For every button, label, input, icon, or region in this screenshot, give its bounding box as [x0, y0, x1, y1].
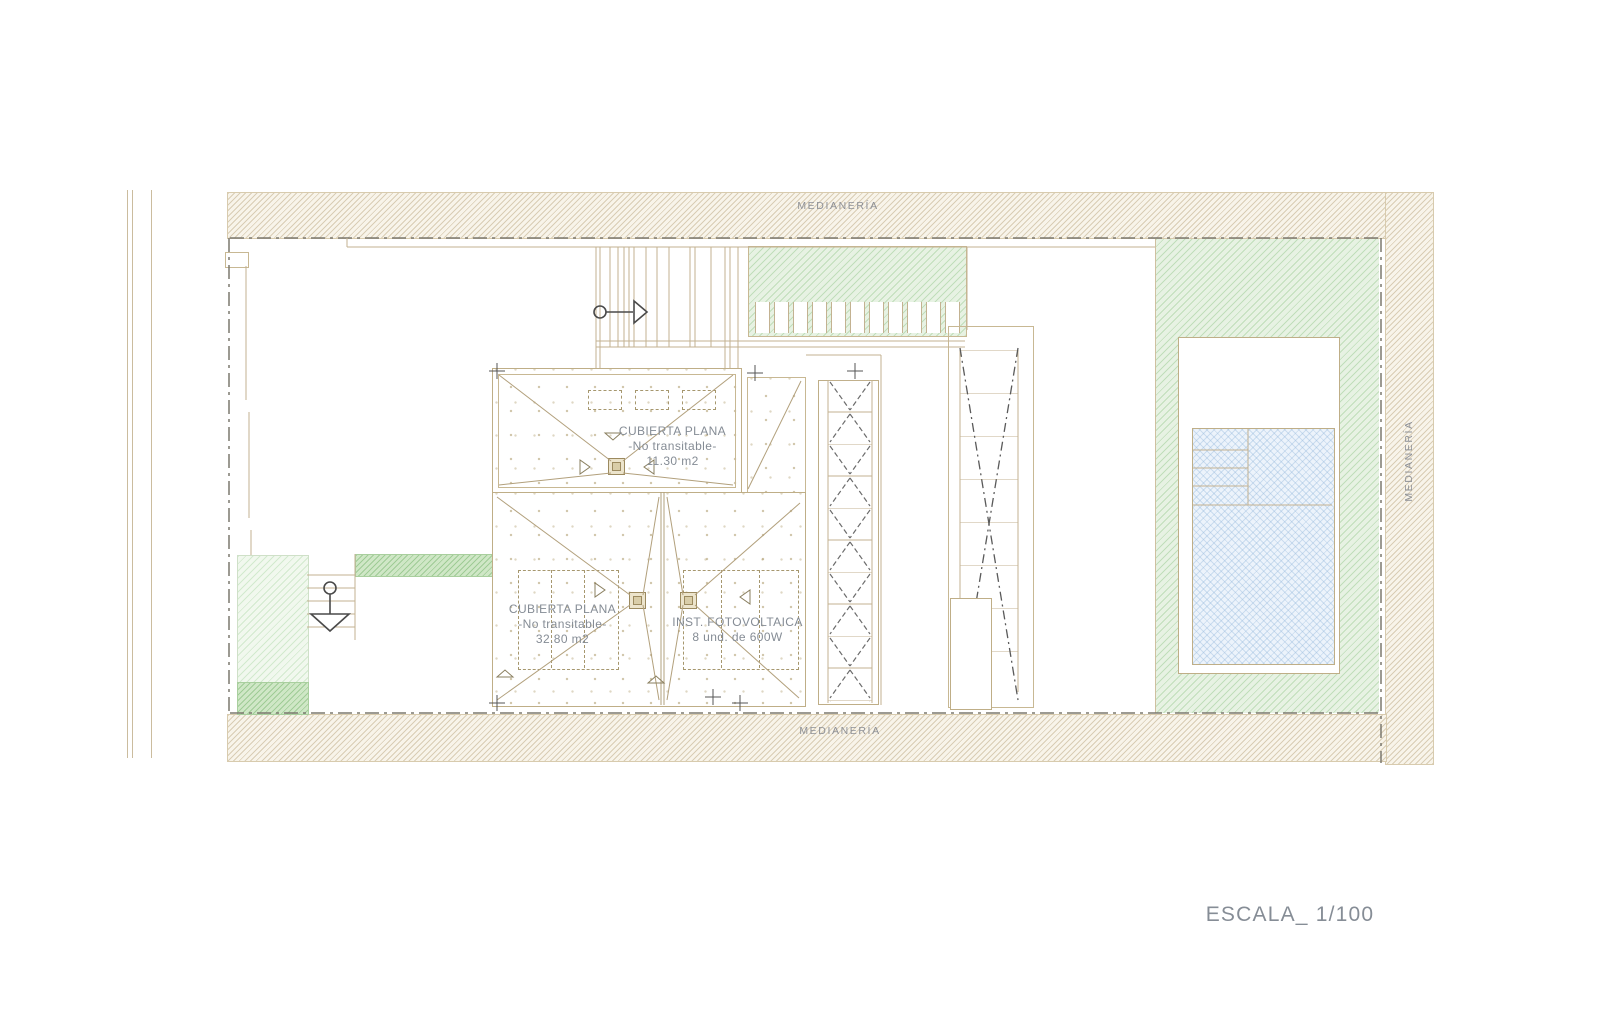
stair-landing	[950, 598, 992, 710]
roof-vent	[635, 390, 669, 410]
stair-direction-arrow-left-icon	[311, 582, 349, 631]
party-wall-bottom	[227, 714, 1387, 762]
roof-upper-label: CUBIERTA PLANA -No transitable- 11.30 m2	[585, 424, 760, 469]
roof-drain	[680, 592, 697, 609]
roof-lower-label-line2: -No transitable-	[475, 617, 650, 632]
page-edge-double-line	[127, 190, 133, 758]
green-terrace-lower-left	[237, 555, 309, 684]
roof-upper-label-line2: -No transitable-	[585, 439, 760, 454]
party-wall-right-label: MEDIANERÍA	[1403, 401, 1415, 521]
photovoltaic-label-line1: INST. FOTOVOLTAICA	[650, 615, 825, 630]
roof-vent	[588, 390, 622, 410]
party-wall-top-label: MEDIANERÍA	[758, 200, 918, 212]
roof-lower-label-line3: 32.80 m2	[475, 632, 650, 647]
scale-label: ESCALA_ 1/100	[1185, 903, 1395, 927]
green-planter-lower-left	[237, 682, 309, 715]
green-strip-mid	[355, 554, 494, 577]
photovoltaic-label: INST. FOTOVOLTAICA 8 und. de 600W	[650, 615, 825, 645]
pool	[1192, 428, 1335, 665]
roof-lower-label: CUBIERTA PLANA -No transitable- 32.80 m2	[475, 602, 650, 647]
stair-direction-arrow-top-icon	[594, 301, 647, 323]
party-wall-bottom-label: MEDIANERÍA	[760, 725, 920, 737]
wall-step-top-left	[225, 252, 249, 268]
pergola-slats	[755, 302, 961, 333]
roof-drain-inner	[684, 596, 693, 605]
photovoltaic-label-line2: 8 und. de 600W	[650, 630, 825, 645]
stair-structure-left	[818, 380, 879, 705]
architectural-roof-plan: MEDIANERÍA MEDIANERÍA MEDIANERÍA CUBIERT…	[0, 0, 1600, 1024]
roof-upper-label-line3: 11.30 m2	[585, 454, 760, 469]
roof-lower-label-line1: CUBIERTA PLANA	[475, 602, 650, 617]
roof-upper-label-line1: CUBIERTA PLANA	[585, 424, 760, 439]
page-edge-line	[151, 190, 152, 758]
roof-vent	[682, 390, 716, 410]
